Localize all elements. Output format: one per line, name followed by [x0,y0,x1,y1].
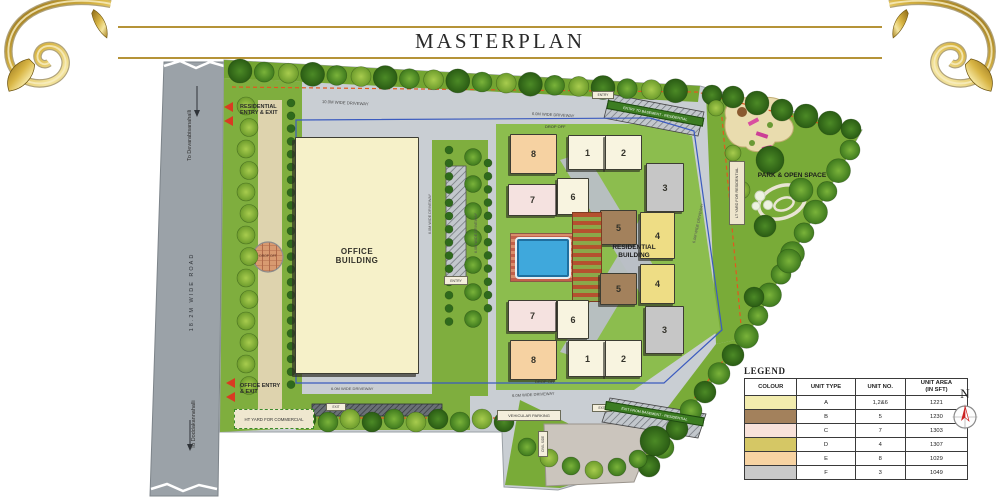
block-8-lower: 8 [510,340,557,380]
shrub-icon [445,172,453,180]
tree-icon [384,409,404,429]
legend-cell: A [797,396,855,410]
tree-icon [518,72,542,96]
pool-deck [510,233,575,282]
tree-icon [237,226,255,244]
exit-label-southwest: EXIT [326,403,346,411]
ht-yard-label: HT YARD FOR COMMERCIAL [234,409,314,429]
legend-cell: C [797,424,855,438]
tree-icon [818,111,842,135]
legend-title: LEGEND [744,366,968,376]
shrub-icon [287,304,295,312]
road-to-doddakannahalli-label: To Doddakannahalli [191,377,197,472]
tree-icon [569,76,589,96]
shrub-icon [287,240,295,248]
block-7-lower: 7 [508,300,557,332]
tree-icon [472,409,492,429]
block-3-lower: 3 [645,306,684,354]
tree-icon [585,461,603,479]
tree-icon [351,67,371,87]
shrub-icon [287,214,295,222]
dropoff-label-top: DROP OFF [545,125,566,130]
tree-icon [608,458,626,476]
tree-icon [708,363,730,385]
legend-swatch [745,452,797,466]
office-building: OFFICE BUILDING [295,137,419,374]
shrub-icon [484,199,492,207]
tree-icon [562,457,580,475]
legend-row: D41307 [745,438,968,452]
shrub-icon [287,355,295,363]
tree-icon [240,119,258,137]
tree-icon [240,205,258,223]
shrub-icon [484,238,492,246]
shrub-icon [287,278,295,286]
dropoff-label-bottom: DROP OFF [535,380,556,385]
legend-cell: B [797,410,855,424]
legend-col-header: COLOUR [745,379,797,396]
tree-icon [237,183,255,201]
tree-icon [629,450,647,468]
tree-icon [545,75,565,95]
shrub-icon [445,186,453,194]
shrub-icon [287,150,295,158]
legend-cell: 1049 [905,466,967,480]
shrub-icon [445,252,453,260]
shrub-icon [287,368,295,376]
tree-icon [465,149,482,166]
lt-yard-label: LT YARD FOR RESIDENTIAL [729,161,745,225]
shrub-icon [287,112,295,120]
tree-icon [664,79,688,103]
tree-icon [428,409,448,429]
park-open-space-label: PARK & OPEN SPACE [752,172,832,180]
shrub-icon [287,381,295,389]
tree-icon [373,66,397,90]
tree-icon [725,145,741,161]
tree-icon [694,381,716,403]
tree-icon [472,72,492,92]
tree-icon [237,140,255,158]
tree-icon [617,79,637,99]
block-4-lower: 4 [640,264,675,304]
legend-cell: 4 [855,438,905,452]
legend-cell: F [797,466,855,480]
legend-header-row: COLOURUNIT TYPEUNIT NO.UNIT AREA (IN SFT… [745,379,968,396]
shrub-icon [287,265,295,273]
shrub-icon [484,265,492,273]
legend-swatch [745,438,797,452]
tree-icon [754,215,776,237]
shrub-icon [287,227,295,235]
shrub-icon [287,125,295,133]
tree-icon [301,62,325,86]
tree-icon [278,63,298,83]
shrub-icon [484,278,492,286]
block-5-lower: 5 [600,273,637,305]
legend-cell: D [797,438,855,452]
legend-cell: E [797,452,855,466]
residential-entry-exit-label: RESIDENTIAL ENTRY & EXIT [240,104,280,117]
shrub-icon [484,172,492,180]
tree-icon [771,99,793,121]
block-1-upper: 1 [568,135,607,170]
legend-row: B51230 [745,410,968,424]
tree-icon [318,412,338,432]
tree-icon [465,203,482,220]
tree-icon [722,86,744,108]
tree-icon [756,146,784,174]
road-to-devarabisanahalli-label: To Devarabisanahalli [187,93,193,178]
tree-icon [465,176,482,193]
tree-icon [465,230,482,247]
tree-icon [748,306,768,326]
tree-icon [794,223,814,243]
tree-icon [327,65,347,85]
legend-swatch [745,410,797,424]
entry-label-basement: ENTRY [592,91,614,99]
legend-table: COLOURUNIT TYPEUNIT NO.UNIT AREA (IN SFT… [744,378,968,480]
tree-icon [450,412,470,432]
vehicular-parking-label: VEHICULAR PARKING [497,410,561,421]
block-7-upper: 7 [508,184,557,216]
office-building-label: OFFICE BUILDING [325,247,389,265]
legend-col-header: UNIT TYPE [797,379,855,396]
shrub-icon [287,137,295,145]
shrub-icon [445,225,453,233]
shrub-icon [484,159,492,167]
shrub-icon [287,253,295,261]
tree-icon [240,334,258,352]
tree-icon [465,311,482,328]
shrub-icon [287,201,295,209]
tree-icon [237,312,255,330]
entry-label-central-ramp: ENTRY [444,276,468,285]
tree-icon [518,438,536,456]
civil-side-label: CIVIL SIDE [538,431,548,457]
shrub-icon [445,212,453,220]
tree-icon [745,91,769,115]
legend-col-header: UNIT NO. [855,379,905,396]
legend: LEGEND COLOURUNIT TYPEUNIT NO.UNIT AREA … [744,366,968,480]
residential-building-label: RESIDENTIAL BUILDING [605,244,663,259]
shrub-icon [445,159,453,167]
legend-cell: 1029 [905,452,967,466]
block-2-upper: 2 [605,135,642,170]
shrub-icon [445,318,453,326]
shrub-icon [484,225,492,233]
tree-icon [722,344,744,366]
central-entry-ramp [446,166,466,278]
tree-icon [362,412,382,432]
tree-icon [399,69,419,89]
road-name-label: 18.2M WIDE ROAD [189,236,195,348]
shrub-icon [484,304,492,312]
block-6-lower: 6 [557,300,589,339]
block-1-lower: 1 [568,340,607,377]
legend-cell: 3 [855,466,905,480]
block-2-lower: 2 [605,340,642,377]
legend-cell: 8 [855,452,905,466]
dropoff-label-circle: DROP OFF [255,254,281,258]
shrub-icon [484,185,492,193]
shrub-icon [287,329,295,337]
legend-row: A1,2&61221 [745,396,968,410]
shrub-icon [445,238,453,246]
legend-cell: 1307 [905,438,967,452]
legend-swatch [745,424,797,438]
shrub-icon [445,265,453,273]
tree-icon [496,73,516,93]
block-3-upper: 3 [646,163,684,212]
tree-icon [641,80,661,100]
swimming-pool [517,239,569,277]
block-5-upper: 5 [600,210,637,245]
tree-icon [237,355,255,373]
office-entry-arrow-icon [226,378,235,388]
shrub-icon [287,176,295,184]
office-entry-exit-label: OFFICE ENTRY & EXIT [240,383,284,396]
residential-entry-arrow-icon [224,102,233,112]
shrub-icon [445,291,453,299]
legend-row: F31049 [745,466,968,480]
shrub-icon [445,199,453,207]
residential-exit-arrow-icon [224,116,233,126]
tree-icon [254,62,274,82]
legend-cell: 7 [855,424,905,438]
tree-icon [228,59,252,83]
block-8-upper: 8 [510,134,557,174]
legend-swatch [745,396,797,410]
tree-icon [424,70,444,90]
driveway-6m-label-east: 6.0M WIDE DRIVEWAY [474,174,478,292]
shrub-icon [287,189,295,197]
shrub-icon [484,212,492,220]
tree-icon [794,104,818,128]
tree-icon [237,269,255,287]
shrub-icon [287,163,295,171]
driveway-6m-label-west: 6.0M WIDE DRIVEWAY [428,160,432,268]
legend-swatch [745,466,797,480]
office-exit-arrow-icon [226,392,235,402]
tree-icon [744,287,764,307]
planter-strips [572,212,602,302]
tree-icon [340,409,360,429]
legend-cell: 5 [855,410,905,424]
shrub-icon [287,291,295,299]
driveway-6m-label-southwest: 6.0M WIDE DRIVEWAY [331,387,395,392]
tree-icon [804,200,828,224]
tree-icon [840,140,860,160]
block-6-upper: 6 [557,178,589,215]
tree-icon [465,284,482,301]
shrub-icon [445,304,453,312]
shrub-icon [287,317,295,325]
tree-icon [735,324,759,348]
tree-icon [240,162,258,180]
north-compass-icon: N [944,386,986,436]
compass-north-label: N [960,386,970,401]
tree-icon [777,249,801,273]
tree-icon [640,426,670,456]
tree-icon [406,412,426,432]
tree-icon [841,119,861,139]
tree-icon [240,291,258,309]
legend-cell: 1,2&6 [855,396,905,410]
shrub-icon [445,146,453,154]
shrub-icon [484,251,492,259]
shrub-icon [484,291,492,299]
masterplan-page: MASTERPLAN [0,0,1000,500]
tree-icon [817,181,837,201]
shrub-icon [287,99,295,107]
tree-icon [789,178,813,202]
legend-row: C71303 [745,424,968,438]
shrub-icon [287,342,295,350]
legend-row: E81029 [745,452,968,466]
tree-icon [465,257,482,274]
tree-icon [446,69,470,93]
tree-icon [708,100,724,116]
